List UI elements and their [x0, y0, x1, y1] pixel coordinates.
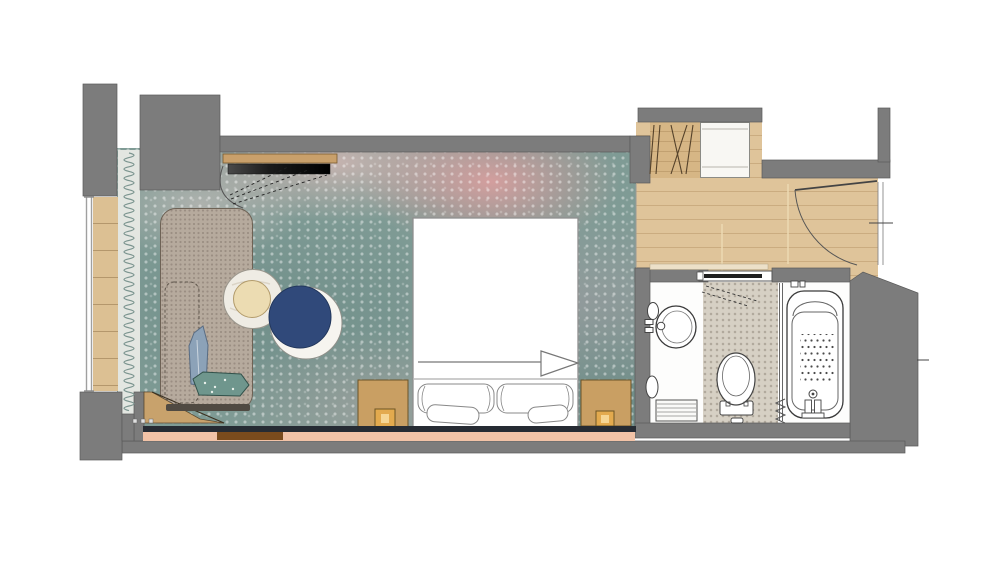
- pocket-door-handle: [697, 272, 703, 280]
- wall-block-bottom-left: [80, 392, 122, 460]
- washbasin: [645, 303, 697, 422]
- wall-mixer-a: [791, 281, 798, 287]
- pocket-door-slide-lines: [702, 286, 757, 306]
- round-armchair: [269, 286, 342, 359]
- toilet: [717, 353, 755, 423]
- flush-button: [731, 418, 743, 423]
- entry-door-leaf: [795, 181, 877, 190]
- floor-outlet-dots: [133, 419, 153, 423]
- tap-spout: [657, 322, 665, 330]
- wall-pier-left-2: [140, 95, 220, 190]
- entry-door-swing-arc: [795, 190, 857, 265]
- tap-handle-bottom: [645, 328, 653, 333]
- wall-corner-fill: [122, 414, 134, 441]
- tub-tap-left: [805, 400, 812, 413]
- headboard-band: [143, 426, 636, 432]
- towel-radiator: [656, 400, 697, 421]
- tap-handle-top: [645, 320, 653, 325]
- wall-bathroom-left: [635, 268, 650, 430]
- side-table-inner: [234, 281, 271, 318]
- tub-faucet-bar: [802, 413, 824, 418]
- sofa-shadow: [166, 404, 250, 411]
- tv-shelf: [223, 154, 337, 163]
- wall-corner-chamfer: [134, 392, 144, 441]
- window: [84, 197, 94, 391]
- pillow-small-right: [527, 404, 568, 423]
- tv-icon: [228, 164, 330, 174]
- wall-bathroom-right: [850, 272, 918, 446]
- wall-step-closet: [630, 136, 650, 183]
- wall-top-bedroom: [220, 136, 630, 152]
- soap-dish: [648, 303, 659, 320]
- shower-spray-dots: [800, 334, 834, 382]
- cabinet-lines: [702, 129, 748, 167]
- floor-plan: [0, 0, 1000, 563]
- tv-unit: [220, 154, 337, 208]
- towel-coil: [776, 399, 785, 423]
- wall-fixture-oval: [646, 376, 658, 398]
- exterior-patch: [762, 122, 878, 162]
- bathtub: [787, 281, 843, 418]
- wall-bathroom-top-right: [772, 268, 850, 282]
- armchair-seat: [269, 286, 331, 348]
- tub-tap-right: [815, 400, 822, 413]
- wall-pier-entry-door: [878, 108, 890, 162]
- plan-linework: [0, 0, 1000, 563]
- curtain-squiggle: [124, 153, 134, 411]
- bottom-brown-strip: [217, 432, 283, 440]
- wall-entry-top: [762, 160, 890, 178]
- pocket-door-track: [650, 264, 768, 270]
- pillow-small-left: [426, 404, 479, 425]
- bed: [413, 218, 578, 428]
- pillow-teal-patterned: [193, 372, 249, 396]
- closet-hangers: [650, 125, 693, 174]
- wall-bottom-band: [122, 441, 905, 453]
- wall-pier-top-left: [83, 84, 117, 196]
- bottom-pink-strip: [143, 432, 635, 441]
- wall-mixer-b: [800, 281, 805, 287]
- wall-closet-top: [638, 108, 762, 122]
- wall-bathroom-bottom: [635, 423, 850, 438]
